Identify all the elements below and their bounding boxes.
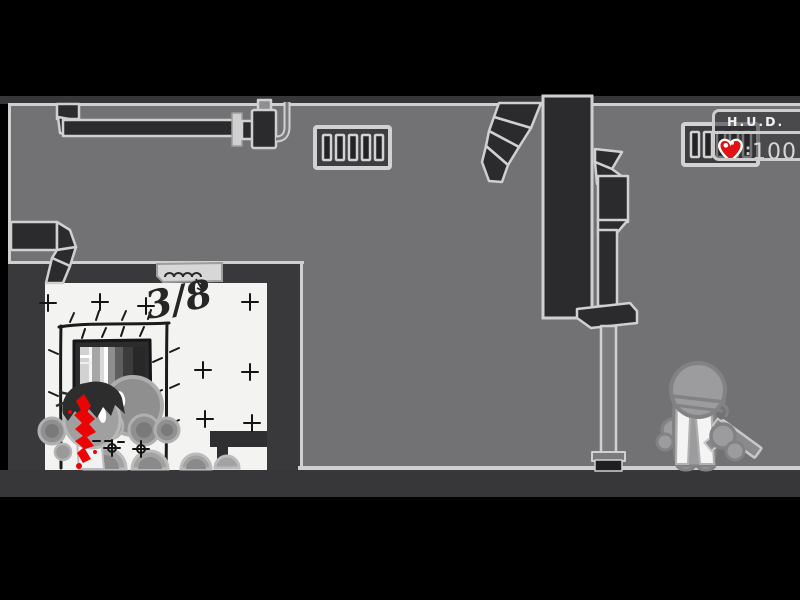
enemy-front-hand (726, 442, 744, 460)
pipe-bracket (577, 303, 637, 328)
enemy-rear-hand (657, 434, 673, 450)
ceiling-duct (57, 100, 287, 148)
enemy-character[interactable] (657, 363, 762, 474)
pipe-base (595, 460, 622, 471)
wall-vent (315, 127, 390, 168)
duct-flange (232, 113, 242, 146)
body-pile (39, 377, 239, 469)
duct-junction-box (252, 110, 276, 148)
scene-art (0, 0, 800, 600)
hud-title: H.U.D. (715, 112, 800, 134)
heart-icon (716, 137, 745, 162)
hud-panel: H.U.D. : 100 (712, 109, 800, 161)
body-mounds (84, 448, 239, 469)
hud-health-row: : 100 (715, 136, 800, 161)
curved-duct-left-of-column (482, 103, 541, 182)
standpipe (601, 326, 616, 454)
knee-joint (55, 444, 71, 460)
hud-health-value: 100 (752, 140, 797, 161)
left-wall-duct-elbow (11, 222, 76, 283)
exhaust-column (543, 96, 592, 318)
game-canvas[interactable]: 3/8 H.U.D. : 100 (0, 0, 800, 600)
hud-health-separator: : (745, 141, 751, 159)
